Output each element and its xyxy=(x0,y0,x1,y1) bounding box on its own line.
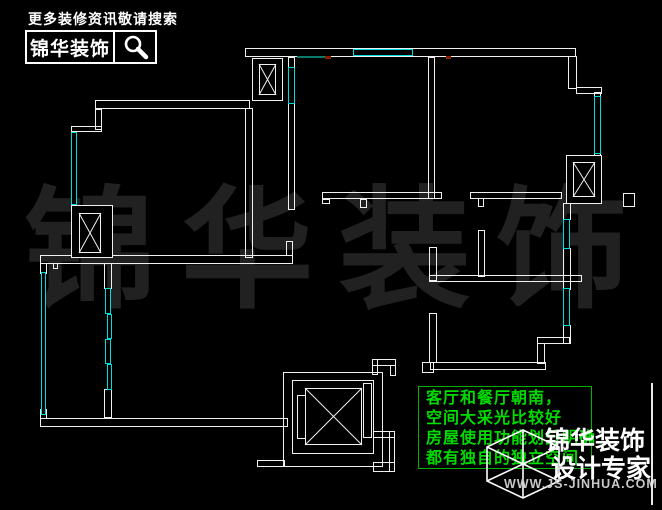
elevator-shaft-box xyxy=(298,396,306,439)
wall-segment xyxy=(54,264,58,269)
window-segment xyxy=(42,273,46,415)
wall-segment xyxy=(373,360,396,366)
window-segment xyxy=(106,340,111,364)
wall-segment xyxy=(258,461,285,467)
wall-segment xyxy=(391,366,396,376)
wall-segment xyxy=(479,231,485,277)
window-segment xyxy=(564,220,570,249)
window-segment xyxy=(106,289,111,314)
wall-segment xyxy=(564,249,571,290)
window-segment xyxy=(108,315,112,339)
wall-segment xyxy=(323,200,330,204)
wall-segment xyxy=(289,58,295,68)
brand-logo-text: 锦华装饰 xyxy=(27,32,113,62)
wall-segment xyxy=(538,344,545,364)
wall-segment xyxy=(105,264,112,289)
wall-segment xyxy=(569,57,577,89)
window-segment xyxy=(72,133,77,205)
cad-mark xyxy=(446,56,451,59)
window-segment xyxy=(354,50,413,56)
window-segment xyxy=(108,365,112,390)
wall-segment xyxy=(246,109,253,258)
wall-segment xyxy=(479,199,484,207)
cad-mark xyxy=(297,56,327,58)
wall-segment xyxy=(430,276,582,282)
wall-segment xyxy=(361,200,367,208)
wall-segment xyxy=(423,363,434,373)
annotation-line: 客厅和餐厅朝南， xyxy=(426,389,591,409)
brand-search-box: 锦华装饰 xyxy=(25,30,157,64)
wall-segment xyxy=(430,314,437,363)
wall-segment xyxy=(96,101,250,109)
wall-segment xyxy=(429,58,435,199)
wall-segment xyxy=(538,338,570,344)
wall-segment xyxy=(289,104,295,210)
wall-segment xyxy=(564,204,571,220)
window-segment xyxy=(289,68,295,104)
wall-segment xyxy=(431,363,546,370)
window-segment xyxy=(564,289,570,326)
wall-segment xyxy=(287,242,293,256)
wall-segment xyxy=(471,193,562,199)
cad-mark xyxy=(325,56,331,59)
wall-segment xyxy=(624,194,635,207)
wall-segment xyxy=(41,419,288,427)
elevator-shaft-box xyxy=(284,373,383,467)
wall-segment xyxy=(374,432,395,438)
elevator-shaft-box xyxy=(364,384,372,438)
footer-website-url: WWW.JS-JINHUA.COM xyxy=(504,477,658,491)
header-slogan: 更多装修资讯敬请搜索 xyxy=(28,9,178,29)
footer-divider-line xyxy=(651,383,653,505)
search-magnifier-icon xyxy=(115,32,155,62)
floorplan-poster: { "header": { "slogan": "更多装修资讯敬请搜索", "b… xyxy=(0,0,662,510)
window-segment xyxy=(595,97,601,154)
wall-segment xyxy=(105,390,112,418)
wall-segment xyxy=(323,193,442,199)
